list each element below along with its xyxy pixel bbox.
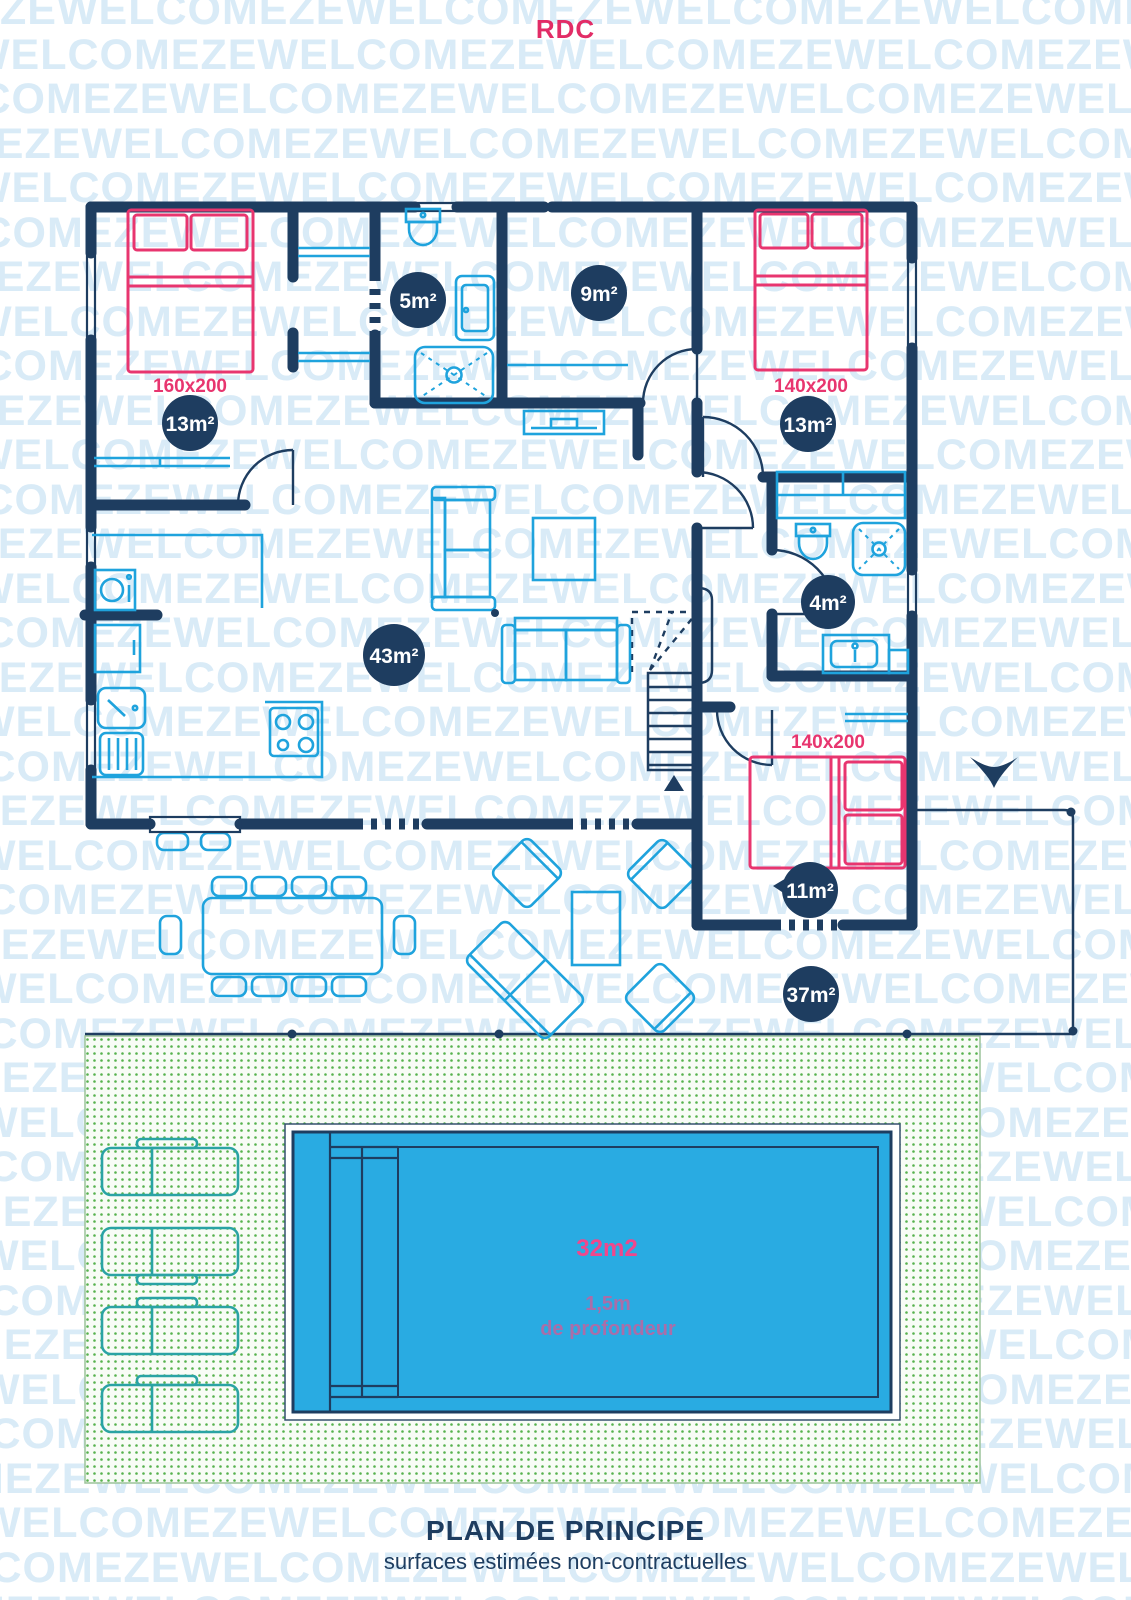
side-table [533,518,595,580]
dining-table [203,898,382,974]
outdoor-lounge-set [464,836,699,1041]
shower [853,523,905,575]
page-title: RDC [0,14,1131,45]
beds: 160x200 140x200 140x200 [128,210,905,868]
lounge-chair [490,836,564,910]
window [908,570,916,616]
room-label-bedroom-1: 13m² [162,395,218,451]
room-label-bedroom-3: 11m² [773,862,838,918]
living-room-sofas [432,487,630,683]
terrace [85,757,1078,1041]
washing-machine [95,570,135,610]
door [238,450,293,505]
bed-size-label: 160x200 [153,376,227,397]
stair-upper-flight-dashed [632,612,697,672]
svg-text:11m²: 11m² [786,880,834,903]
bar-stools [157,833,230,850]
dish-rack [100,733,143,775]
garden: 32m2 1,5m de profondeur [85,1036,980,1483]
lounge-chair [625,837,699,911]
door [697,472,753,528]
shower [415,347,493,403]
plan-title: PLAN DE PRINCIPE [0,1515,1131,1547]
pool-depth-line1: 1,5m [585,1293,631,1315]
window [908,258,916,348]
bed-140x200-horizontal: 140x200 [750,732,905,868]
fridge [95,625,140,672]
kitchen-sink [98,688,145,728]
svg-text:43m²: 43m² [369,645,418,668]
bed-size-label: 140x200 [791,732,865,753]
stair-steps [648,687,697,765]
room-label-bathroom-1: 5m² [390,272,446,328]
toilet [406,209,440,245]
room-label-hall: 9m² [571,265,627,321]
door [703,417,763,477]
pool-area-label: 32m2 [576,1235,637,1262]
lounge-sofa [464,919,586,1041]
terrace-posts [288,808,1078,1039]
bathroom-cabinet [456,276,494,340]
tv-stand [524,411,604,434]
plan-subtitle: surfaces estimées non-contractuelles [0,1549,1131,1575]
floor-lamp-dot [491,609,499,617]
bathroom-2-fixtures [777,472,908,673]
sink-vanity [823,635,908,673]
room-label-bathroom-2: 4m² [801,575,855,629]
kitchen-bar-window [150,817,240,832]
door [643,349,697,403]
room-area-labels: 13m² 5m² 9m² 13m² 43m² 4m² [162,265,855,1022]
closet-shelves [845,714,908,721]
svg-text:37m²: 37m² [786,984,835,1007]
sofa-vertical [432,487,495,610]
toilet [796,524,830,559]
room-label-terrace: 37m² [783,966,839,1022]
svg-text:13m²: 13m² [783,414,832,437]
swimming-pool: 32m2 1,5m de profondeur [285,1124,900,1420]
bed-140x200: 140x200 [755,210,867,397]
room-label-bedroom-2: 13m² [780,396,836,452]
pool-water [293,1132,891,1412]
floor-plan-page: ZEWELCOMEZEWELCOMEZEWELCOMEZEWELCOMEZEWE… [0,0,1131,1600]
sofa-horizontal [502,618,630,683]
bed-size-label: 140x200 [774,376,848,397]
terrace-boundary [912,810,1073,1034]
window [87,527,95,567]
room-label-living: 43m² [363,624,425,686]
svg-text:5m²: 5m² [399,290,436,313]
outdoor-dining-set [160,877,415,996]
kitchen [92,535,322,777]
floor-plan-drawing: 32m2 1,5m de profondeur [0,0,1131,1600]
lounge-chair [623,961,697,1035]
closet-shelves [298,248,370,361]
stair-direction-arrow-icon [664,775,684,791]
window [87,700,95,770]
direction-arrow-icon [970,757,1018,788]
svg-text:13m²: 13m² [165,413,214,436]
pool-depth-line2: de profondeur [540,1318,676,1340]
bed-160x200: 160x200 [128,210,253,397]
closet-shelves [94,458,230,466]
svg-text:9m²: 9m² [580,283,617,306]
window [87,253,95,340]
svg-text:4m²: 4m² [809,592,846,615]
coffee-table [572,892,620,965]
